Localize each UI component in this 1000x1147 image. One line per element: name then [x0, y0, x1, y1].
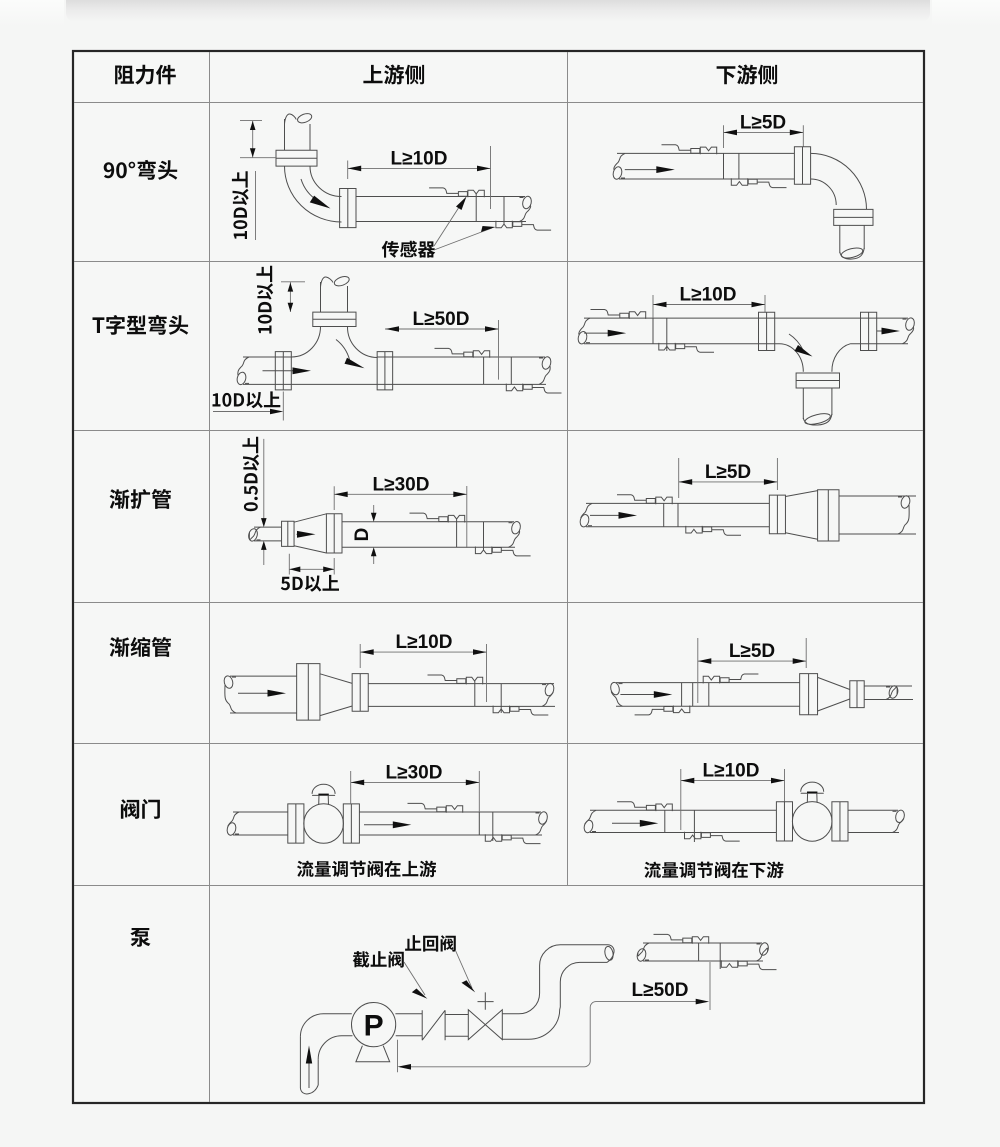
- svg-text:L≥5D: L≥5D: [740, 113, 786, 134]
- svg-text:D: D: [352, 528, 373, 542]
- svg-text:L≥10D: L≥10D: [396, 632, 453, 653]
- svg-text:L≥30D: L≥30D: [373, 474, 430, 495]
- svg-text:L≥10D: L≥10D: [703, 761, 760, 782]
- svg-text:L≥10D: L≥10D: [391, 149, 448, 170]
- svg-text:L≥50D: L≥50D: [632, 980, 689, 1001]
- svg-text:L≥5D: L≥5D: [729, 641, 775, 662]
- svg-text:L≥5D: L≥5D: [705, 462, 751, 483]
- svg-text:L≥50D: L≥50D: [413, 309, 470, 330]
- svg-text:P: P: [364, 1010, 384, 1043]
- svg-text:L≥30D: L≥30D: [386, 762, 443, 783]
- svg-text:L≥10D: L≥10D: [680, 285, 737, 306]
